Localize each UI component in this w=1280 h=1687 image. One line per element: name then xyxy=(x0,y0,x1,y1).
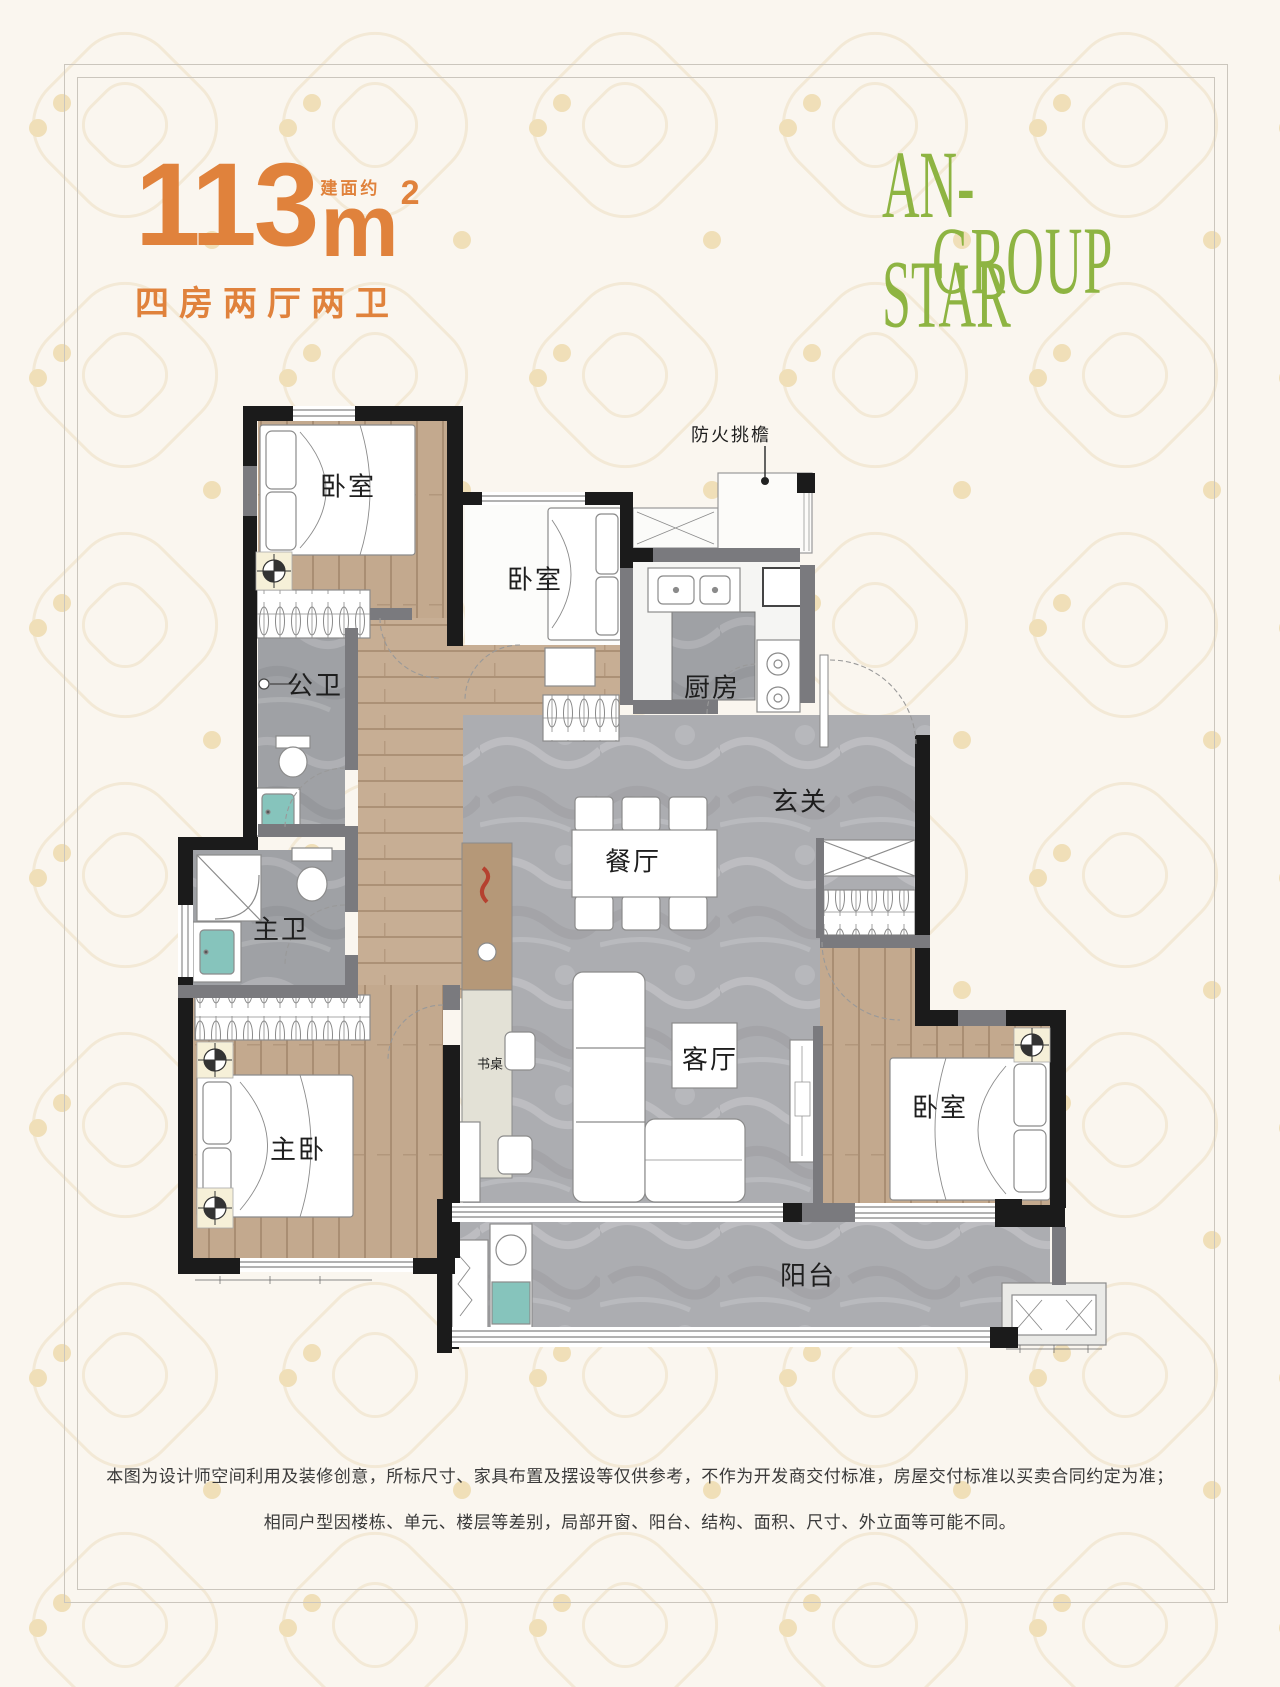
shoe-cabinet xyxy=(820,840,915,876)
room-label-desk: 书桌 xyxy=(477,1054,503,1073)
room-label-master-bedroom: 主卧 xyxy=(270,1130,326,1167)
master-bedroom-furniture xyxy=(195,995,370,1217)
ac-box-top xyxy=(633,508,718,548)
fireproof-eave-annotation: 防火挑檐 xyxy=(691,421,771,447)
room-label-foyer: 玄关 xyxy=(772,782,828,819)
disclaimer-line1: 本图为设计师空间利用及装修创意，所标尺寸、家具布置及摆设等仅供参考，不作为开发商… xyxy=(0,1462,1280,1487)
room-label-balcony: 阳台 xyxy=(780,1256,836,1293)
room-label-living: 客厅 xyxy=(682,1040,738,1077)
disclaimer-line2: 相同户型因楼栋、单元、楼层等差别，局部开窗、阳台、结构、面积、尺寸、外立面等可能… xyxy=(0,1508,1280,1533)
tv-console xyxy=(790,1040,815,1162)
room-label-kitchen: 厨房 xyxy=(684,668,740,705)
bedroom2-desk xyxy=(545,648,595,686)
desk-chair-1 xyxy=(505,1032,535,1070)
entry-door-leaf xyxy=(820,655,828,747)
poster-page: 113 建面约 m 2 四房两厅两卫 AN-STAR GROUP xyxy=(0,0,1280,1687)
laundry xyxy=(452,1224,532,1330)
room-label-bath-master: 主卫 xyxy=(253,910,309,947)
foyer-closet xyxy=(820,890,915,935)
room-label-bedroom-right: 卧室 xyxy=(912,1088,968,1125)
room-label-dining: 餐厅 xyxy=(605,842,661,879)
room-label-bath-public: 公卫 xyxy=(287,666,343,703)
vase xyxy=(478,943,496,961)
room-label-bedroom-top-middle: 卧室 xyxy=(507,560,563,597)
desk-chair-2 xyxy=(498,1136,532,1174)
room-label-bedroom-top-left: 卧室 xyxy=(320,467,376,504)
bed-right xyxy=(890,1058,1050,1200)
